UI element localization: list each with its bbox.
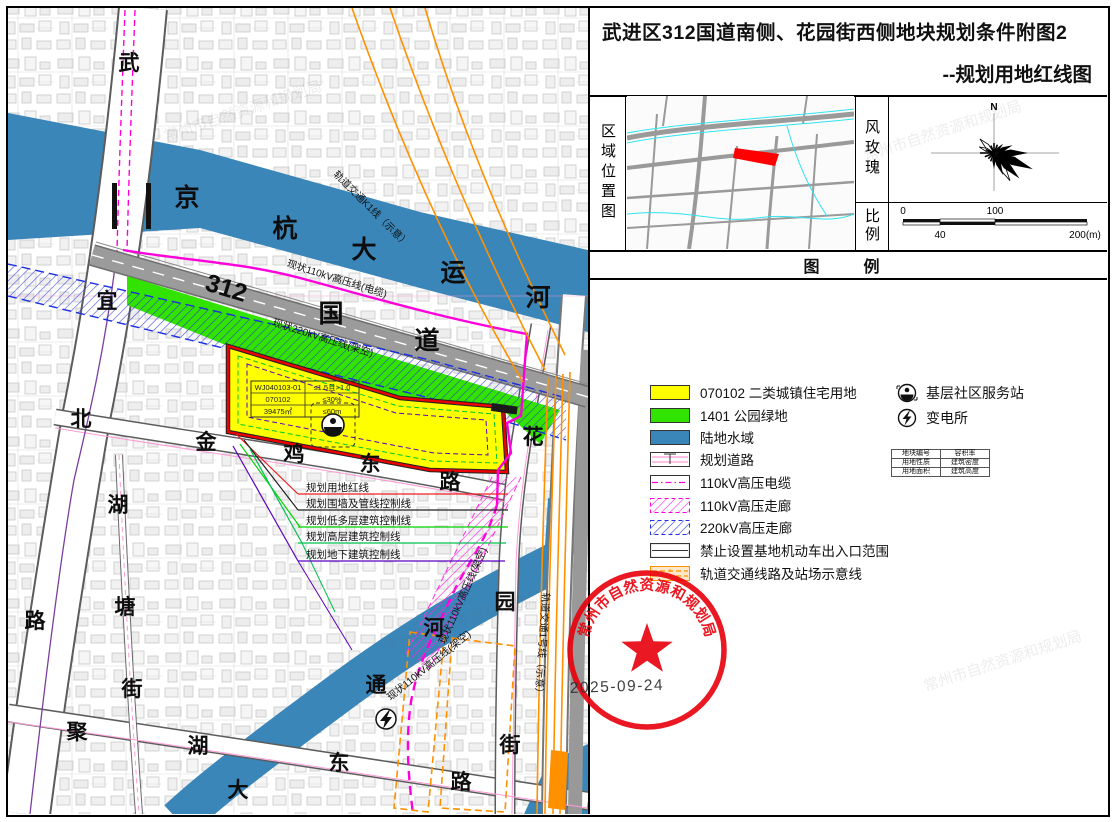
legend-label: 110kV高压电缆	[700, 472, 791, 492]
rail-station-box	[548, 750, 568, 810]
parcel-area: 39475㎡	[264, 407, 293, 416]
parcel-usecode: 070102	[265, 395, 290, 404]
jinji-char: 路	[440, 470, 462, 494]
key-cell: 用地性质	[892, 459, 941, 468]
hutang-char: 塘	[115, 595, 136, 619]
legend-item-110kv-corridor: 110kV高压走廊	[650, 495, 791, 515]
datong-river-char: 通	[366, 674, 387, 697]
canal-char: 大	[351, 236, 376, 264]
cell-border	[625, 95, 626, 250]
hutang-char: 街	[121, 677, 143, 701]
legend-item-water: 陆地水域	[650, 427, 754, 447]
legend-label: 110kV高压走廊	[700, 495, 791, 515]
leader-wall-line-label: 规划围墙及管线控制线	[306, 497, 411, 510]
sheet-subtitle: --规划用地红线图	[600, 58, 1092, 87]
canal-char: 京	[174, 183, 199, 212]
scale-tick-0: 0	[900, 206, 906, 217]
canal-char: 杭	[272, 214, 297, 243]
legend-label: 变电所	[926, 408, 968, 428]
bridge-tick	[146, 183, 151, 229]
jinji-char: 金	[195, 430, 218, 454]
legend-label: 1401 公园绿地	[700, 405, 788, 425]
legend-item-110kv-cable: 110kV高压电缆	[650, 472, 791, 492]
north-label: N	[990, 102, 997, 113]
g312-char: 国	[318, 300, 343, 328]
legend-item-220kv-corridor: 220kV高压走廊	[650, 517, 792, 537]
main-plan-map: WJ040103-01 ≤1.5且>1.0 070102 ≤30% 39475㎡…	[8, 8, 588, 814]
leader-red-line-label: 规划用地红线	[306, 481, 369, 494]
legend-item-community-station: 基层社区服务站	[896, 382, 1024, 404]
official-stamp: 常州市自然资源和规划局 2025-09-24	[552, 560, 752, 740]
wuyi-char: 路	[25, 609, 47, 633]
wind-rose-label: 风玫瑰	[856, 96, 887, 202]
region-location-inset-map	[627, 96, 854, 249]
sheet-title: 武进区312国道南侧、花园街西侧地块规划条件附图2	[602, 16, 1102, 45]
plan-sheet: WJ040103-01 ≤1.5且>1.0 070102 ≤30% 39475㎡…	[0, 0, 1115, 822]
leader-highrise-label: 规划高层建筑控制线	[306, 530, 401, 543]
canal-char: 河	[525, 284, 550, 312]
juhu-char: 路	[451, 770, 473, 794]
wuyi-char: 北	[71, 408, 92, 431]
datong-river-char: 大	[228, 779, 249, 802]
region-map-label: 区域位置图	[591, 96, 624, 250]
key-cell: 建筑密度	[941, 459, 990, 468]
wind-rose-petals	[992, 144, 1033, 179]
substation-symbol	[376, 709, 396, 729]
substation-icon	[896, 407, 918, 429]
legend-item-no-vehicle-access: 禁止设置基地机动车出入口范围	[650, 540, 889, 560]
canal-char: 运	[440, 259, 465, 287]
wuyi-char: 武	[119, 52, 140, 75]
jinji-char: 东	[360, 452, 381, 476]
legend-label: 陆地水域	[700, 427, 754, 447]
leader-lowrise-label: 规划低多层建筑控制线	[306, 514, 411, 527]
legend-item-planned-road: 规划道路	[650, 449, 754, 469]
legend-label: 220kV高压走廊	[700, 517, 792, 537]
key-cell: 地块编号	[892, 450, 941, 459]
parcel-key-table: 地块编号 容积率 用地性质 建筑密度 用地面积 建筑高度	[891, 449, 990, 477]
bridge-tick	[112, 183, 117, 229]
legend-label: 070102 二类城镇住宅用地	[700, 382, 857, 402]
hutang-char: 湖	[108, 494, 129, 517]
key-cell: 用地面积	[892, 468, 941, 477]
wind-rose: N	[889, 95, 1106, 202]
community-station-icon	[896, 382, 918, 404]
jinji-char: 鸡	[283, 442, 305, 466]
parcel-code: WJ040103-01	[255, 383, 302, 392]
huayuan-char: 街	[499, 733, 521, 757]
legend-item-residential: 070102 二类城镇住宅用地	[650, 382, 857, 402]
huayuan-char: 花	[523, 425, 544, 449]
key-cell: 建筑高度	[941, 468, 990, 477]
juhu-char: 湖	[188, 735, 209, 758]
juhu-char: 聚	[66, 721, 89, 744]
legend-item-substation: 变电所	[896, 407, 968, 429]
legend-label: 基层社区服务站	[926, 383, 1024, 403]
parcel-far: ≤1.5且>1.0	[314, 383, 351, 392]
scale-label: 比例	[856, 203, 887, 249]
scale-tick-200: 200(m)	[1069, 230, 1101, 241]
wuyi-char: 宜	[97, 289, 118, 313]
stamp-star	[621, 623, 672, 672]
scale-tick-40: 40	[934, 230, 946, 241]
leader-underground-label: 规划地下建筑控制线	[306, 548, 401, 561]
legend-header: 图 例	[590, 250, 1107, 280]
scale-tick-100: 100	[987, 206, 1004, 217]
legend-label: 规划道路	[700, 449, 754, 469]
legend-item-park: 1401 公园绿地	[650, 405, 788, 425]
scale-bar: 0 100 40 200(m)	[889, 202, 1106, 250]
scale-bar-segments	[903, 219, 1087, 225]
key-cell: 容积率	[941, 450, 990, 459]
huayuan-char: 园	[495, 591, 516, 614]
legend-label: 禁止设置基地机动车出入口范围	[700, 540, 889, 560]
stamp-date: 2025-09-24	[570, 677, 665, 697]
g312-char: 道	[414, 326, 439, 355]
juhu-char: 东	[329, 751, 350, 775]
